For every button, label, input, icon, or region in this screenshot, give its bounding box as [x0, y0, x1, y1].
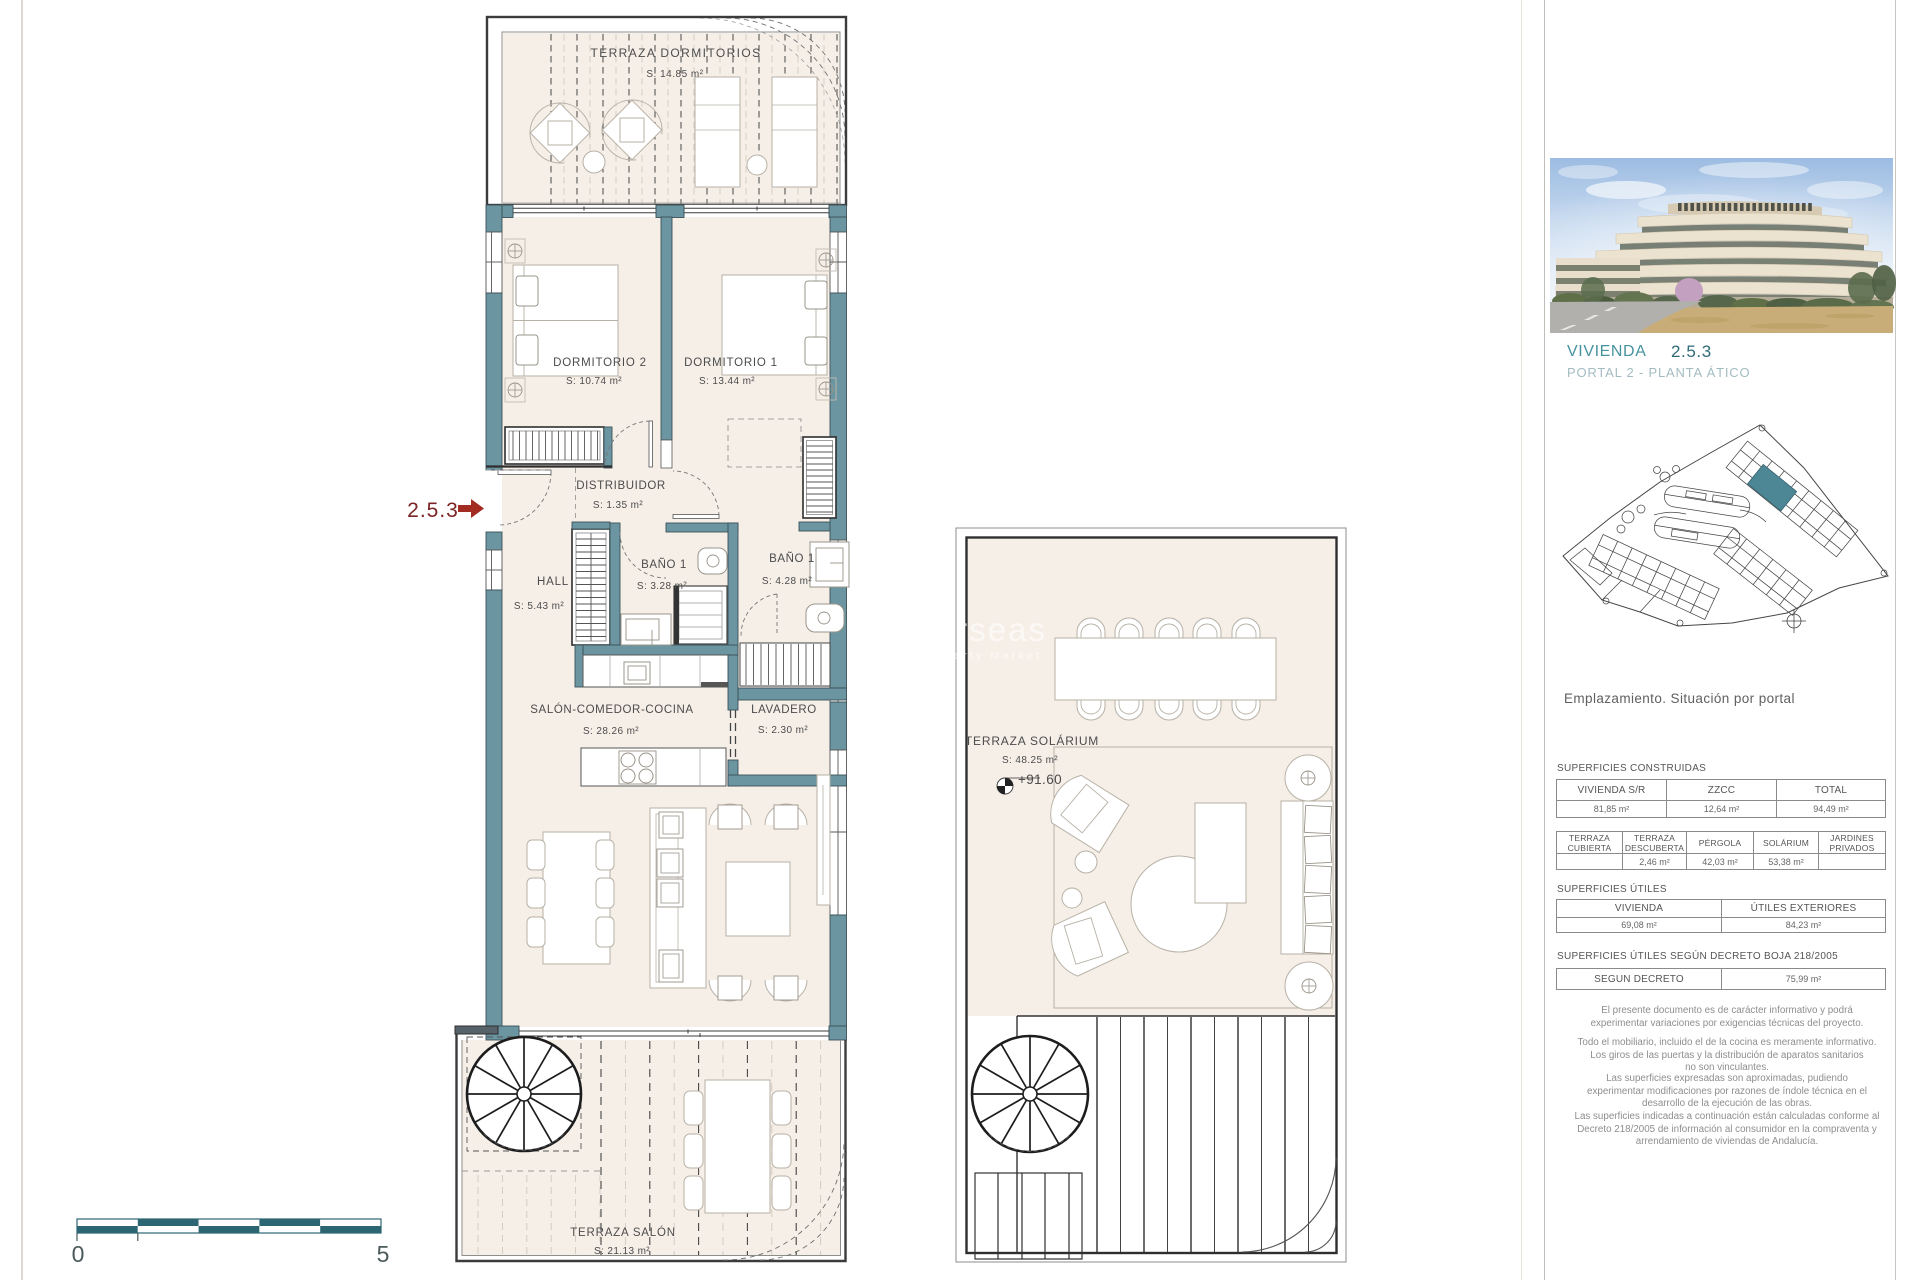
svg-text:overseas: overseas — [897, 611, 1047, 648]
svg-text:S: 48.25 m²: S: 48.25 m² — [1002, 755, 1058, 766]
svg-text:S: 28.26 m²: S: 28.26 m² — [583, 726, 639, 737]
svg-text:S: 5.43 m²: S: 5.43 m² — [514, 601, 564, 612]
svg-text:S: 10.74 m²: S: 10.74 m² — [566, 376, 622, 387]
svg-text:+91.60: +91.60 — [1018, 772, 1062, 787]
svg-text:SALÓN-COMEDOR-COCINA: SALÓN-COMEDOR-COCINA — [530, 703, 693, 716]
svg-text:S: 14.85 m²: S: 14.85 m² — [646, 69, 703, 80]
svg-text:2.5.3: 2.5.3 — [407, 499, 459, 522]
svg-text:BAÑO 1: BAÑO 1 — [641, 558, 687, 571]
svg-text:DORMITORIO 1: DORMITORIO 1 — [684, 357, 778, 369]
svg-text:DORMITORIO 2: DORMITORIO 2 — [553, 357, 647, 369]
svg-text:TERRAZA SALÓN: TERRAZA SALÓN — [570, 1226, 676, 1239]
svg-text:Property Market: Property Market — [919, 650, 1042, 662]
svg-text:S: 21.13 m²: S: 21.13 m² — [594, 1246, 650, 1257]
svg-text:S: 4.28 m²: S: 4.28 m² — [762, 576, 812, 587]
svg-text:S: 2.30 m²: S: 2.30 m² — [758, 725, 808, 736]
svg-text:HALL: HALL — [537, 576, 569, 588]
svg-text:5: 5 — [377, 1241, 390, 1267]
svg-text:S: 1.35 m²: S: 1.35 m² — [593, 500, 643, 511]
svg-text:DISTRIBUIDOR: DISTRIBUIDOR — [576, 480, 666, 492]
svg-text:S: 13.44 m²: S: 13.44 m² — [699, 376, 755, 387]
svg-text:TERRAZA SOLÁRIUM: TERRAZA SOLÁRIUM — [965, 733, 1099, 748]
svg-text:LAVADERO: LAVADERO — [751, 704, 817, 716]
svg-text:0: 0 — [72, 1241, 85, 1267]
svg-text:TERRAZA DORMITORIOS: TERRAZA DORMITORIOS — [590, 46, 761, 60]
svg-text:S: 3.28 m²: S: 3.28 m² — [637, 581, 687, 592]
svg-text:BAÑO 1: BAÑO 1 — [769, 552, 815, 565]
